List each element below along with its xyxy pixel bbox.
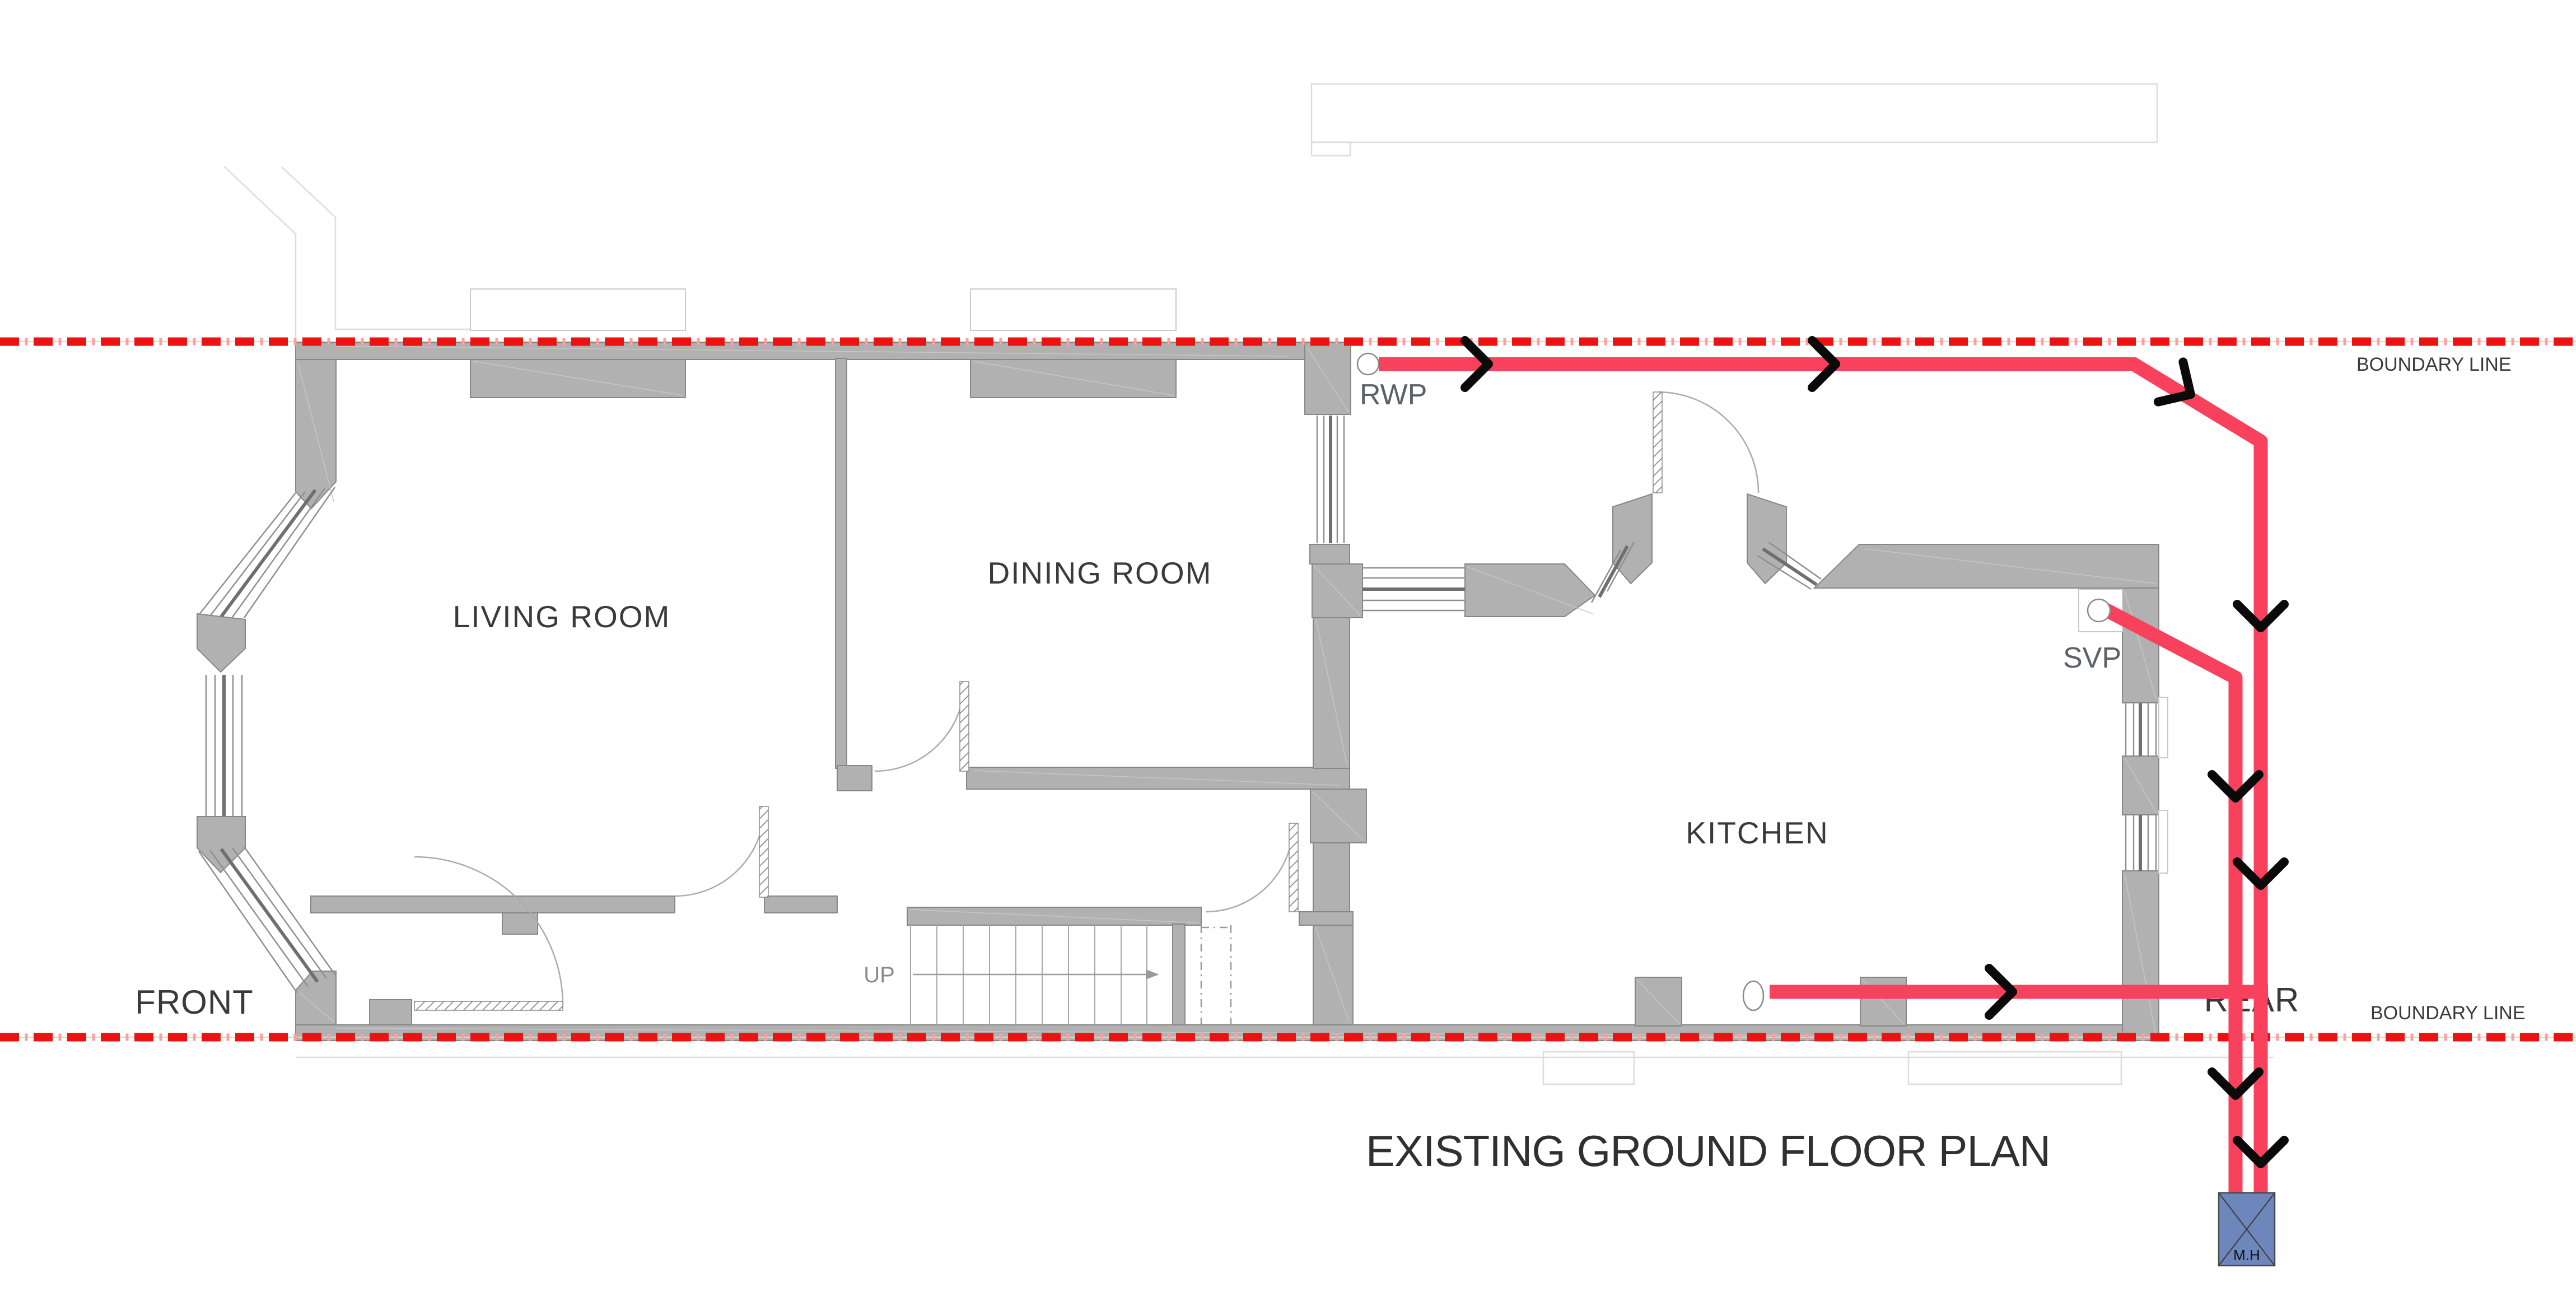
front-door-leaf	[414, 1001, 563, 1010]
front-door-swing-arc	[414, 857, 563, 1005]
front-door-pier	[370, 1000, 412, 1025]
bay-glazing-upper	[199, 487, 335, 618]
dining-door-leaf	[960, 682, 969, 771]
understairs-cupboard-door	[1201, 925, 1231, 1026]
dining-corner-block-a	[1310, 544, 1350, 564]
bay-corner-post-lower	[197, 817, 245, 873]
dining-door-swing-arc	[875, 682, 964, 771]
room-label-dining: DINING ROOM	[988, 556, 1212, 590]
staircase: UP	[864, 924, 1159, 1026]
front-label: FRONT	[135, 983, 254, 1021]
labels: LIVING ROOM DINING ROOM KITCHEN FRONT RE…	[135, 556, 2299, 1176]
doors	[414, 392, 1758, 1026]
boundary-label-top: BOUNDARY LINE	[2356, 354, 2512, 375]
garden-door-leaf	[1653, 392, 1662, 493]
gully-outlet	[1743, 981, 1763, 1010]
floor-plan-drawing: UP LIVING ROOM DINING ROOM KITCHEN FRONT…	[0, 0, 2576, 1292]
kitchen-left-jamb-band	[1299, 912, 1353, 925]
up-arrow	[913, 969, 1159, 980]
kitchen-top-wall	[1814, 544, 2159, 588]
side-return-window-band	[1362, 568, 1465, 610]
living-door-leaf	[759, 806, 768, 897]
dining-front-window	[970, 289, 1176, 330]
garden-door-swing-arc	[1658, 392, 1758, 493]
living-front-window	[470, 289, 685, 330]
bay-corner-post-upper	[197, 614, 245, 672]
kitchen-right-window-upper	[2126, 697, 2168, 758]
svp-outlet	[2088, 599, 2110, 622]
rwp-label: RWP	[1360, 379, 1427, 411]
hall-window-glazing	[1317, 416, 1344, 543]
manhole: M.H	[2219, 1193, 2275, 1266]
up-label: UP	[864, 963, 895, 987]
room-label-kitchen: KITCHEN	[1686, 815, 1828, 850]
site-outline-neighbour-structure	[1312, 84, 2157, 156]
manhole-label: M.H	[2233, 1247, 2260, 1263]
stair-right-wall	[1173, 924, 1185, 1026]
walls	[197, 343, 2159, 1041]
living-bottom-wall-right	[764, 896, 837, 913]
svp-label: SVP	[2063, 642, 2121, 674]
rwp-outlet	[1357, 353, 1379, 375]
hall-door-swing-arc	[1206, 824, 1293, 912]
hall-pillar	[1305, 343, 1351, 414]
drainage-fittings	[1357, 353, 2110, 1010]
living-bottom-wall-left	[311, 896, 675, 913]
living-dining-divider-wall	[836, 358, 847, 768]
room-label-living: LIVING ROOM	[453, 599, 671, 634]
living-door-swing-arc	[675, 806, 764, 896]
drawing-title: EXISTING GROUND FLOOR PLAN	[1366, 1126, 2050, 1176]
boundary-label-bottom: BOUNDARY LINE	[2370, 1002, 2526, 1024]
hall-lower-wall	[1313, 843, 1350, 913]
hall-door-leaf	[1289, 823, 1298, 912]
dining-door-jamb	[837, 766, 872, 791]
bay-glazing-middle	[206, 675, 242, 817]
kitchen-right-window-lower	[2126, 810, 2168, 873]
